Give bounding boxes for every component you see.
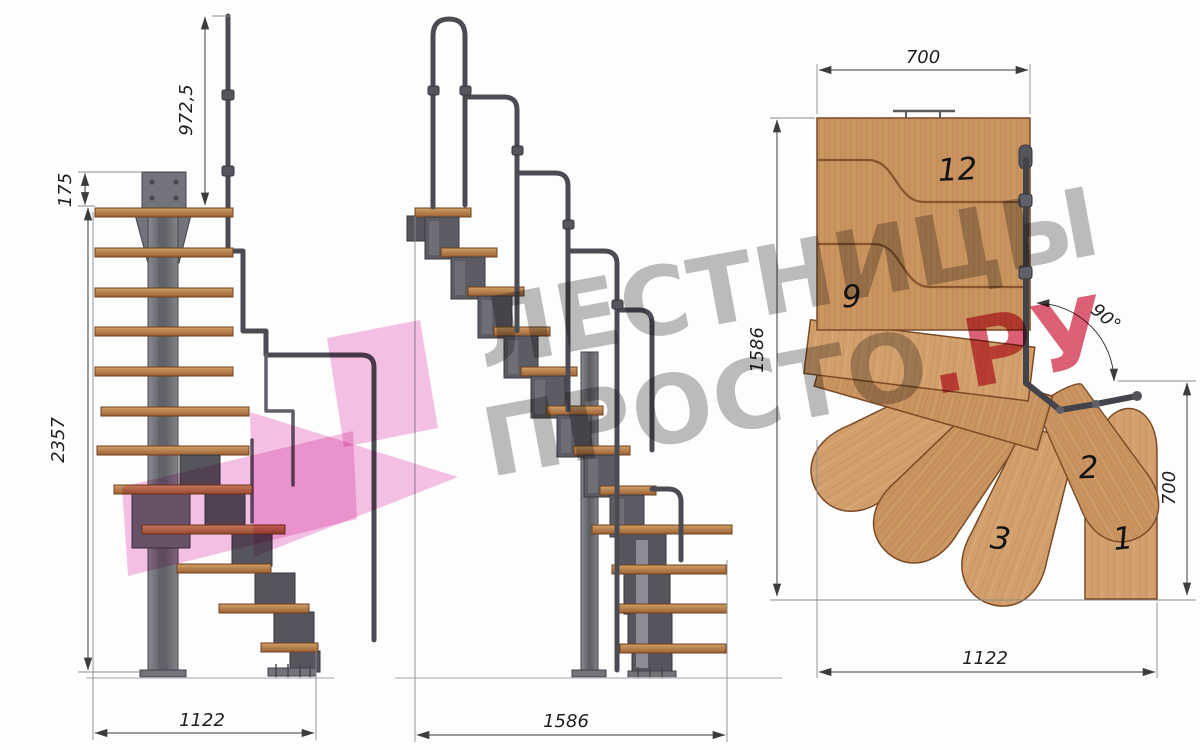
dim-total-height-label: 2357 (48, 417, 69, 463)
column-base-plate (572, 670, 606, 677)
side-base-plate (628, 671, 676, 678)
dim-side-length-label: 1586 (543, 711, 589, 732)
column-groove (158, 210, 167, 670)
dim-plate-height: 175 (55, 172, 142, 207)
dim-plan-exit-depth-label: 700 (1159, 471, 1180, 505)
dim-base-width-label: 1122 (179, 710, 225, 731)
dim-handrail-height-label: 972,5 (176, 84, 197, 136)
rail-joint (222, 90, 234, 100)
front-base-plate (268, 668, 316, 676)
wall-bracket (407, 216, 425, 241)
tread-number-2: 2 (1078, 450, 1099, 487)
front-elevation-view: 972,5 175 2357 1122 (48, 16, 374, 740)
rail-joint (222, 166, 234, 176)
dim-plan-top-width-label: 700 (906, 47, 940, 68)
dim-plan-total-width-label: 1122 (962, 648, 1008, 669)
tread-number-1: 1 (1111, 520, 1134, 558)
dim-plate-height-label: 175 (55, 173, 76, 207)
tread-number-12: 12 (937, 151, 978, 189)
column-base-plate (140, 670, 186, 677)
dim-total-height: 2357 (48, 208, 140, 672)
staircase-technical-drawing: 972,5 175 2357 1122 (0, 0, 1200, 750)
top-mounting-plate (142, 172, 186, 209)
watermark-arrow-square (327, 320, 438, 447)
dim-plan-top-width: 700 (817, 47, 1030, 114)
